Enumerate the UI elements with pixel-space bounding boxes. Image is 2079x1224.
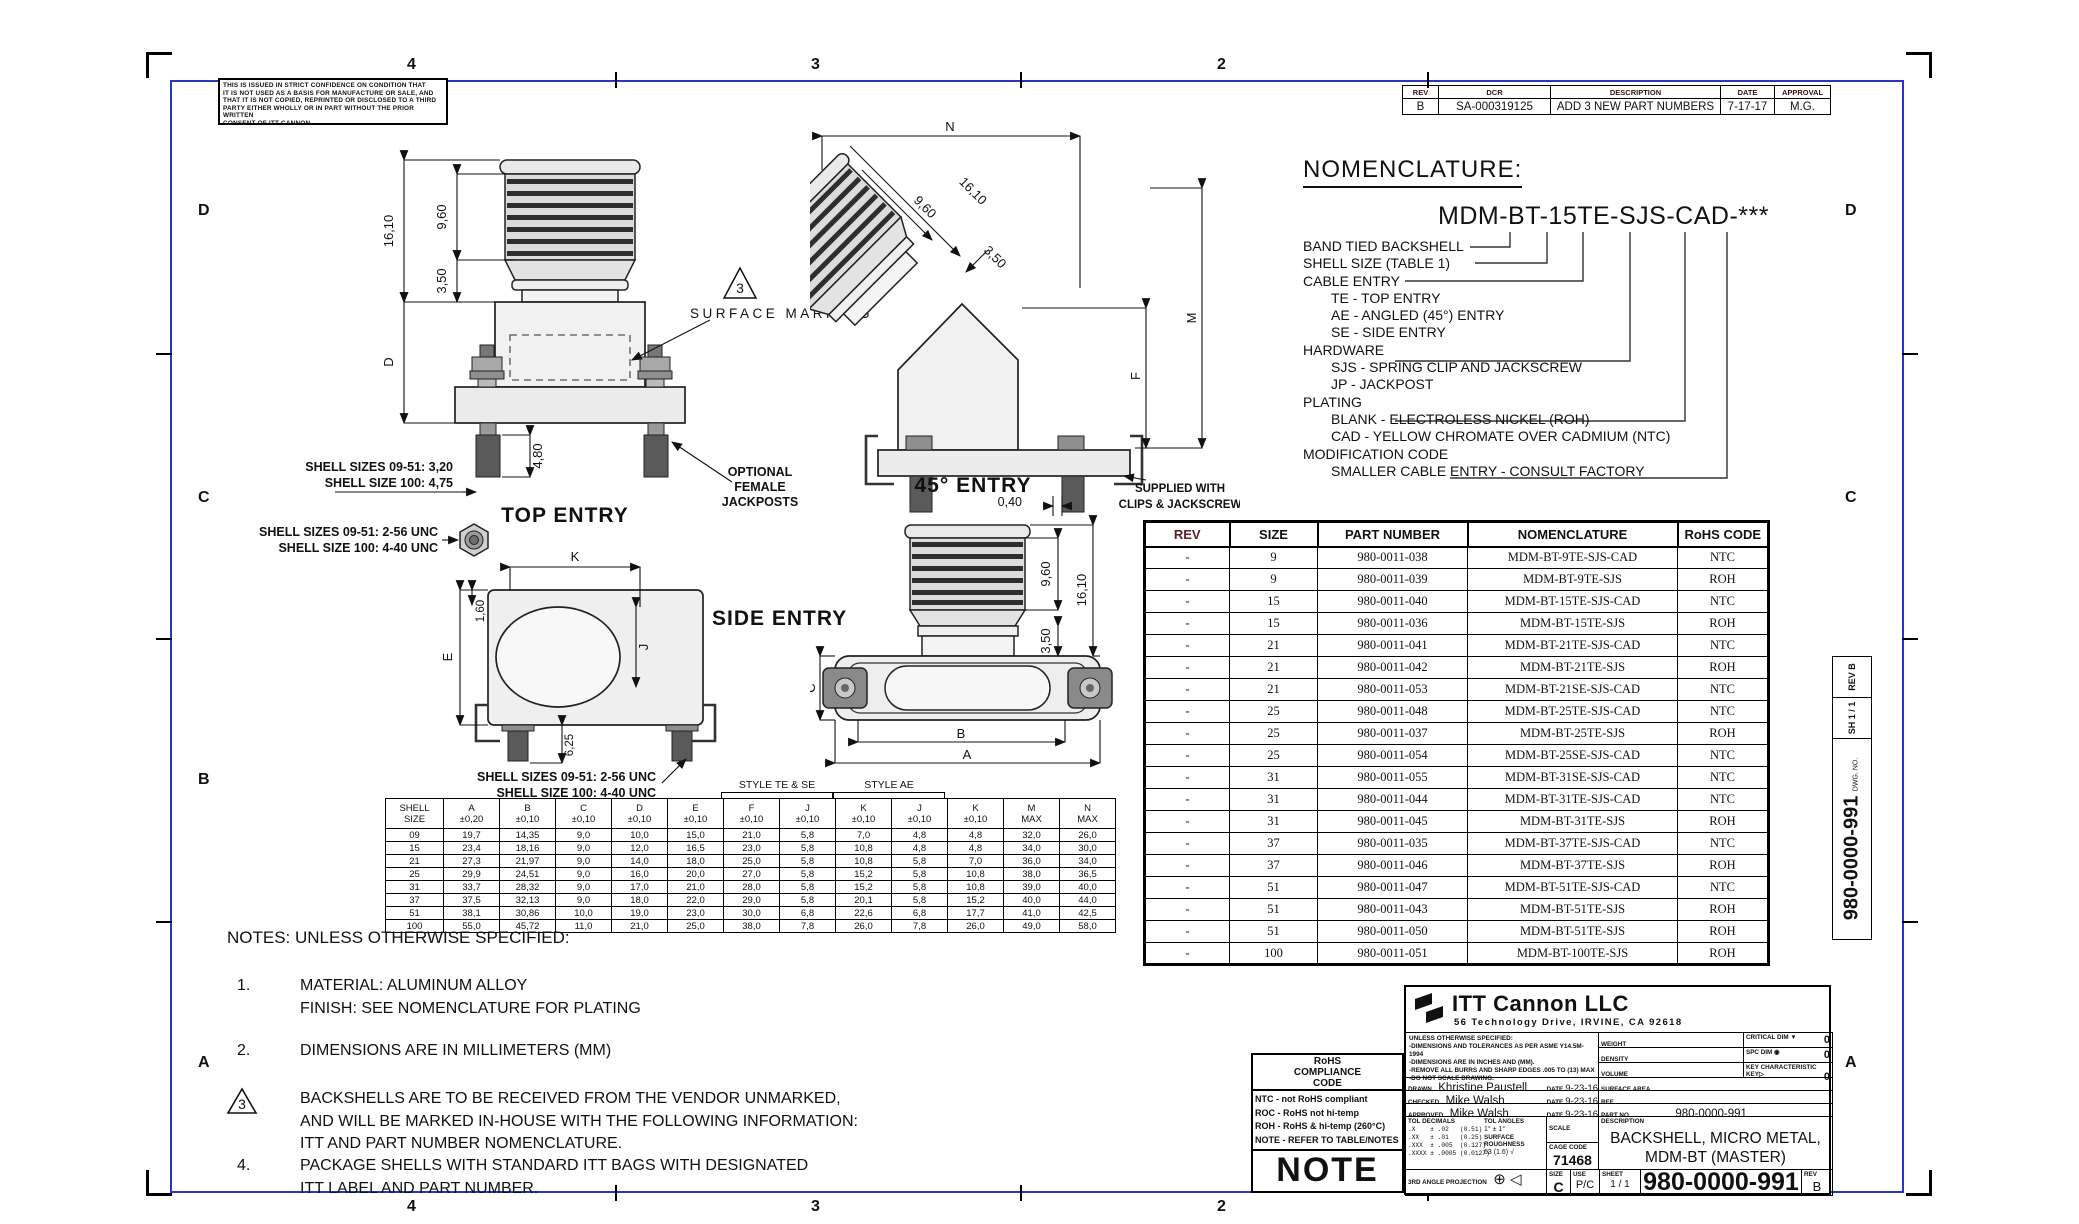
zone-label-top: 4 xyxy=(407,56,416,74)
confidence-notice: THIS IS ISSUED IN STRICT CONFIDENCE ON C… xyxy=(218,78,448,125)
table-cell: MDM-BT-21TE-SJS-CAD xyxy=(1468,635,1678,657)
entry-45-drawing xyxy=(810,151,1142,512)
note-item-2: 2. DIMENSIONS ARE IN MILLIMETERS (MM) xyxy=(227,1040,611,1063)
table-cell: 5,8 xyxy=(892,894,948,907)
table-cell: MDM-BT-15TE-SJS xyxy=(1468,613,1678,635)
table-cell: 39,0 xyxy=(1004,881,1060,894)
table-row: 1523,418,169,012,016,523,05,810,84,84,83… xyxy=(386,842,1116,855)
table-row: -31980-0011-045MDM-BT-31TE-SJSROH xyxy=(1145,811,1769,833)
table-cell: 4,8 xyxy=(948,829,1004,842)
dim-label: 3,50 xyxy=(1038,628,1053,653)
table-cell: - xyxy=(1145,855,1230,877)
table-cell: 10,8 xyxy=(948,868,1004,881)
table-cell: MDM-BT-21TE-SJS xyxy=(1468,657,1678,679)
dim-label: A xyxy=(963,747,972,762)
table-row: -31980-0011-044MDM-BT-31TE-SJS-CADNTC xyxy=(1145,789,1769,811)
table-cell: - xyxy=(1145,921,1230,943)
table-cell: 980-0011-037 xyxy=(1318,723,1468,745)
table-cell: 17,7 xyxy=(948,907,1004,920)
thread-note: SHELL SIZE 100: 4-40 UNC xyxy=(278,541,438,555)
dim-label: C xyxy=(810,683,818,692)
rev-value: B xyxy=(1802,1179,1832,1194)
note-line: PACKAGE SHELLS WITH STANDARD ITT BAGS WI… xyxy=(300,1155,808,1178)
table-cell: 980-0011-048 xyxy=(1318,701,1468,723)
cage-code-field: CAGE CODE 71468 xyxy=(1546,1142,1599,1170)
drawn-row: DRAWN Khristine Paustell DATE9-23-16 xyxy=(1405,1077,1599,1091)
table-cell: 19,0 xyxy=(612,907,668,920)
table-cell: 980-0011-050 xyxy=(1318,921,1468,943)
dim-label: 16,10 xyxy=(1074,574,1089,607)
table-row: -100980-0011-051MDM-BT-100TE-SJSROH xyxy=(1145,943,1769,965)
nomenclature-line: CAD - YELLOW CHROMATE OVER CADMIUM (NTC) xyxy=(1303,428,1670,445)
corner-mark xyxy=(146,52,172,78)
zone-tick xyxy=(156,353,172,355)
table-cell: 51 xyxy=(386,907,444,920)
table-cell: 5,8 xyxy=(780,868,836,881)
use-value: P/C xyxy=(1571,1179,1599,1191)
key-characteristic-field: KEY CHARACTERISTIC KEY▷ 0 xyxy=(1743,1062,1833,1078)
table-cell: - xyxy=(1145,679,1230,701)
dim-label: F xyxy=(1128,372,1143,380)
table-cell: ROH xyxy=(1678,657,1769,679)
surface-marking-flag: 3 xyxy=(724,268,756,298)
table-cell: MDM-BT-51TE-SJS xyxy=(1468,899,1678,921)
table-cell: 19,7 xyxy=(444,829,500,842)
table-row: -37980-0011-035MDM-BT-37TE-SJS-CADNTC xyxy=(1145,833,1769,855)
table-row: BSA-000319125ADD 3 NEW PART NUMBERS7-17-… xyxy=(1403,99,1831,115)
taper xyxy=(505,260,635,280)
table-row: -21980-0011-053MDM-BT-21SE-SJS-CADNTC xyxy=(1145,679,1769,701)
table-cell: 9,0 xyxy=(556,868,612,881)
nomenclature-legend: BAND TIED BACKSHELLSHELL SIZE (TABLE 1)C… xyxy=(1303,238,1670,480)
weight-field: WEIGHT xyxy=(1598,1032,1744,1048)
column-header: REV xyxy=(1403,86,1439,99)
table-cell: 41,0 xyxy=(1004,907,1060,920)
field-label: SHEET xyxy=(1600,1170,1640,1179)
description-value: BACKSHELL, MICRO METAL, MDM-BT (MASTER) xyxy=(1599,1126,1832,1170)
table-cell: ROH xyxy=(1678,921,1769,943)
table-cell: 15,2 xyxy=(948,894,1004,907)
note-line: ITT LABEL AND PART NUMBER. xyxy=(300,1178,808,1201)
table-cell: MDM-BT-9TE-SJS-CAD xyxy=(1468,547,1678,569)
zone-label-left: B xyxy=(198,771,210,789)
table-cell: MDM-BT-15TE-SJS-CAD xyxy=(1468,591,1678,613)
table-cell: 5,8 xyxy=(780,855,836,868)
rohs-legend-line: NTC - not RoHS compliant xyxy=(1255,1093,1400,1107)
table-cell: 980-0011-047 xyxy=(1318,877,1468,899)
table-cell: 5,8 xyxy=(892,855,948,868)
table-cell: 31 xyxy=(386,881,444,894)
column-header: SIZE xyxy=(1230,522,1318,547)
right-washer xyxy=(666,725,698,731)
edge-dwg-value: 980-0000-991 xyxy=(1841,796,1863,921)
table-row: 2529,924,519,016,020,027,05,815,25,810,8… xyxy=(386,868,1116,881)
table-row: 3133,728,329,017,021,028,05,815,25,810,8… xyxy=(386,881,1116,894)
table-cell: MDM-BT-51TE-SJS xyxy=(1468,921,1678,943)
table-cell: 21,0 xyxy=(724,829,780,842)
table-cell: 51 xyxy=(1230,921,1318,943)
table-cell: 980-0011-054 xyxy=(1318,745,1468,767)
surface-roughness-value: 63 (1.6) √ xyxy=(1482,1149,1546,1156)
table-cell: 7,0 xyxy=(836,829,892,842)
cable-opening xyxy=(496,607,620,707)
table-row: -9980-0011-039MDM-BT-9TE-SJSROH xyxy=(1145,569,1769,591)
left-jackscrew-center xyxy=(841,684,849,692)
svg-text:3: 3 xyxy=(736,280,744,296)
zone-label-right: A xyxy=(1845,1054,1857,1072)
note-item-4: 4. PACKAGE SHELLS WITH STANDARD ITT BAGS… xyxy=(227,1155,808,1200)
table-row: -51980-0011-047MDM-BT-51TE-SJS-CADNTC xyxy=(1145,877,1769,899)
table-cell: 10,8 xyxy=(836,855,892,868)
top-entry-drawing xyxy=(455,160,685,556)
table-cell: 30,86 xyxy=(500,907,556,920)
table-cell: 14,35 xyxy=(500,829,556,842)
table-cell: 23,4 xyxy=(444,842,500,855)
table-cell: ADD 3 NEW PART NUMBERS xyxy=(1551,99,1721,115)
table-cell: 33,7 xyxy=(444,881,500,894)
table-cell: 38,1 xyxy=(444,907,500,920)
table-cell: - xyxy=(1145,877,1230,899)
table-cell: 15 xyxy=(1230,613,1318,635)
thread-note: SHELL SIZES 09-51: 2-56 UNC xyxy=(477,770,656,784)
dim-label: 16,10 xyxy=(381,215,396,248)
left-screw-head xyxy=(906,436,932,450)
dim-label: 3,50 xyxy=(981,243,1010,272)
table-cell: 17,0 xyxy=(612,881,668,894)
field-label: 3RD ANGLE PROJECTION xyxy=(1406,1178,1489,1187)
table-cell: 980-0011-039 xyxy=(1318,569,1468,591)
note-number: 2. xyxy=(237,1040,250,1063)
table-cell: - xyxy=(1145,701,1230,723)
table-cell: 4,8 xyxy=(892,842,948,855)
table-cell: MDM-BT-25SE-SJS-CAD xyxy=(1468,745,1678,767)
projection-field: 3RD ANGLE PROJECTION ⊕ ◁ xyxy=(1405,1169,1547,1196)
table-row: 2127,321,979,014,018,025,05,810,85,87,03… xyxy=(386,855,1116,868)
table-cell: NTC xyxy=(1678,877,1769,899)
table-cell: - xyxy=(1145,613,1230,635)
field-label: KEY CHARACTERISTIC xyxy=(1746,1064,1817,1071)
rohs-legend-line: ROH - RoHS & hi-temp (260°C) xyxy=(1255,1120,1400,1134)
dim-label: E xyxy=(440,652,455,661)
table-cell: 49,0 xyxy=(1004,920,1060,933)
rohs-legend-line: NOTE - REFER TO TABLE/NOTES xyxy=(1255,1134,1400,1148)
table-cell: 58,0 xyxy=(1060,920,1116,933)
flange xyxy=(455,387,685,423)
table-cell: 37 xyxy=(1230,855,1318,877)
zone-tick xyxy=(1902,921,1918,923)
table-cell: 5,8 xyxy=(780,829,836,842)
jackposts-note: FEMALE xyxy=(734,480,785,494)
nomenclature-line: MODIFICATION CODE xyxy=(1303,446,1670,463)
d-slot xyxy=(885,666,1050,710)
edge-sheet-value: SH 1 / 1 xyxy=(1847,702,1857,735)
table-cell: 23,0 xyxy=(668,907,724,920)
side-entry-view: K J E 1,60 6,25 SIDE ENTRY SHELL SIZES 0… xyxy=(440,545,870,820)
table-cell: 30,0 xyxy=(1060,842,1116,855)
table-cell: 5,8 xyxy=(780,894,836,907)
table-cell: 21 xyxy=(1230,679,1318,701)
column-header: REV xyxy=(1145,522,1230,547)
stud-note: SHELL SIZES 09-51: 3,20 xyxy=(305,460,453,474)
nomenclature-title: NOMENCLATURE: xyxy=(1303,156,1522,188)
zone-label-left: D xyxy=(198,202,210,220)
table-cell: 980-0011-042 xyxy=(1318,657,1468,679)
note-number: 4. xyxy=(237,1155,250,1178)
table-cell: 980-0011-043 xyxy=(1318,899,1468,921)
table-cell: 24,51 xyxy=(500,868,556,881)
neck xyxy=(922,636,1014,656)
field-value: 0 xyxy=(1824,1049,1830,1061)
table-cell: - xyxy=(1145,657,1230,679)
side-entry-drawing xyxy=(476,590,715,761)
table-cell: NTC xyxy=(1678,767,1769,789)
table-cell: MDM-BT-31SE-SJS-CAD xyxy=(1468,767,1678,789)
table-cell: 21 xyxy=(1230,657,1318,679)
note-line: DIMENSIONS ARE IN MILLIMETERS (MM) xyxy=(300,1040,611,1063)
table-cell: 34,0 xyxy=(1004,842,1060,855)
table-cell: 7,8 xyxy=(780,920,836,933)
size-value: C xyxy=(1547,1179,1570,1195)
nomenclature-part-code: MDM-BT-15TE-SJS-CAD-*** xyxy=(1438,202,1769,231)
table-cell: NTC xyxy=(1678,547,1769,569)
table-cell: - xyxy=(1145,569,1230,591)
field-label: TOL ANGLES xyxy=(1482,1117,1546,1126)
nomenclature-line: AE - ANGLED (45°) ENTRY xyxy=(1303,307,1670,324)
table-cell: 26,0 xyxy=(1060,829,1116,842)
table-row: 3737,532,139,018,022,029,05,820,15,815,2… xyxy=(386,894,1116,907)
table-cell: MDM-BT-51TE-SJS-CAD xyxy=(1468,877,1678,899)
table-cell: NTC xyxy=(1678,679,1769,701)
table-cell: 27,0 xyxy=(724,868,780,881)
table-cell: NTC xyxy=(1678,635,1769,657)
table-cell: 18,0 xyxy=(612,894,668,907)
table-cell: M.G. xyxy=(1775,99,1831,115)
table-cell: MDM-BT-31TE-SJS-CAD xyxy=(1468,789,1678,811)
drawing-number: 980-0000-991 xyxy=(1640,1169,1802,1196)
entry-45-view: N 9,60 16,10 3,50 M F 45° ENTRY SUPPLIED… xyxy=(810,118,1240,520)
table-cell: SA-000319125 xyxy=(1439,99,1551,115)
dim-label: M xyxy=(1184,313,1199,324)
table-row: 0919,714,359,010,015,021,05,87,04,84,832… xyxy=(386,829,1116,842)
critical-dim-field: CRITICAL DIM ▼ 0 xyxy=(1743,1032,1833,1048)
rohs-note-label: NOTE xyxy=(1253,1151,1402,1189)
nomenclature-line: SJS - SPRING CLIP AND JACKSCREW xyxy=(1303,359,1670,376)
zone-tick xyxy=(1902,638,1918,640)
band-cap xyxy=(905,525,1030,538)
table-row: -21980-0011-041MDM-BT-21TE-SJS-CADNTC xyxy=(1145,635,1769,657)
dim-label: 16,10 xyxy=(956,174,990,208)
drawing-sheet: 4 3 2 4 3 2 D C B A D C A THIS IS ISSUED… xyxy=(0,0,2079,1224)
sheet-value: 1 / 1 xyxy=(1600,1179,1640,1190)
table-cell: ROH xyxy=(1678,899,1769,921)
column-header: APPROVAL xyxy=(1775,86,1831,99)
table-row: -21980-0011-042MDM-BT-21TE-SJSROH xyxy=(1145,657,1769,679)
field-value: 0 xyxy=(1824,1034,1830,1046)
table-row: -25980-0011-048MDM-BT-25TE-SJS-CADNTC xyxy=(1145,701,1769,723)
table-cell: ROH xyxy=(1678,943,1769,965)
angled-body xyxy=(898,304,1018,450)
left-stud xyxy=(508,731,528,761)
table-cell: 51 xyxy=(1230,899,1318,921)
dim-label: 4,80 xyxy=(530,443,545,468)
zone-tick xyxy=(156,921,172,923)
table-cell: 38,0 xyxy=(724,920,780,933)
table-cell: 100 xyxy=(1230,943,1318,965)
table-cell: - xyxy=(1145,635,1230,657)
table-cell: 7,8 xyxy=(892,920,948,933)
field-label: SCALE xyxy=(1547,1124,1572,1133)
zone-tick xyxy=(156,638,172,640)
use-field: USE P/C xyxy=(1570,1169,1600,1196)
corner-mark xyxy=(1906,52,1932,78)
table-cell: B xyxy=(1403,99,1439,115)
field-label: SPC DIM xyxy=(1746,1049,1772,1056)
dim-label: 6,25 xyxy=(564,734,576,756)
table-cell: - xyxy=(1145,943,1230,965)
parts-header-row: REV SIZE PART NUMBER NOMENCLATURE RoHS C… xyxy=(1145,522,1769,547)
dim-label: J xyxy=(636,644,651,651)
table-cell: - xyxy=(1145,547,1230,569)
table-cell: 9,0 xyxy=(556,881,612,894)
zone-label-top: 3 xyxy=(811,56,820,74)
table-cell: MDM-BT-25TE-SJS-CAD xyxy=(1468,701,1678,723)
field-label: CRITICAL DIM xyxy=(1746,1034,1789,1041)
zone-tick xyxy=(615,72,617,88)
table-cell: MDM-BT-100TE-SJS xyxy=(1468,943,1678,965)
table-cell: ROH xyxy=(1678,855,1769,877)
rohs-title: RoHS COMPLIANCE CODE xyxy=(1253,1055,1402,1091)
table-cell: 37,5 xyxy=(444,894,500,907)
table-cell: 15 xyxy=(386,842,444,855)
table-cell: 9,0 xyxy=(556,894,612,907)
table-cell: 9 xyxy=(1230,569,1318,591)
zone-label-bottom: 4 xyxy=(407,1198,416,1216)
table-cell: 36,0 xyxy=(1004,855,1060,868)
table-cell: 10,0 xyxy=(612,829,668,842)
table-cell: 21 xyxy=(386,855,444,868)
table-cell: - xyxy=(1145,745,1230,767)
table-cell: - xyxy=(1145,899,1230,921)
table-cell: 9 xyxy=(1230,547,1318,569)
table-cell: 980-0011-055 xyxy=(1318,767,1468,789)
itt-logo-icon xyxy=(1412,991,1448,1027)
table-cell: 16,0 xyxy=(612,868,668,881)
table-cell: 22,6 xyxy=(836,907,892,920)
table-cell: 9,0 xyxy=(556,855,612,868)
table-cell: 20,0 xyxy=(668,868,724,881)
rohs-legend: NTC - not RoHS compliantROC - RoHS not h… xyxy=(1253,1091,1402,1151)
dim-label: 9,60 xyxy=(911,193,940,222)
table-cell: 15,2 xyxy=(836,881,892,894)
table-row: 5138,130,8610,019,023,030,06,822,66,817,… xyxy=(386,907,1116,920)
table-cell: 980-0011-041 xyxy=(1318,635,1468,657)
column-header: SHELLSIZE xyxy=(386,799,444,829)
spc-dim-field: SPC DIM ◉ 0 xyxy=(1743,1047,1833,1063)
jackposts-note: OPTIONAL xyxy=(728,465,793,479)
table-cell: ROH xyxy=(1678,811,1769,833)
notes-heading: NOTES: UNLESS OTHERWISE SPECIFIED: xyxy=(227,928,570,948)
table-cell: 29,9 xyxy=(444,868,500,881)
zone-tick xyxy=(1020,72,1022,88)
table-row: -15980-0011-040MDM-BT-15TE-SJS-CADNTC xyxy=(1145,591,1769,613)
zone-label-right: D xyxy=(1845,202,1857,220)
right-screw-head xyxy=(1058,436,1084,450)
corner-mark xyxy=(1906,1170,1932,1196)
dim-label: 9,60 xyxy=(1038,561,1053,586)
column-header: PART NUMBER xyxy=(1318,522,1468,547)
table-cell: 25 xyxy=(1230,701,1318,723)
column-header: DESCRIPTION xyxy=(1551,86,1721,99)
nomenclature-line: TE - TOP ENTRY xyxy=(1303,290,1670,307)
dim-label: K xyxy=(571,549,580,564)
corner-mark xyxy=(146,1170,172,1196)
zone-label-right: C xyxy=(1845,489,1857,507)
table-cell: 32,13 xyxy=(500,894,556,907)
zone-label-bottom: 3 xyxy=(811,1198,820,1216)
table-cell: - xyxy=(1145,811,1230,833)
table-cell: 51 xyxy=(1230,877,1318,899)
table-cell: 5,8 xyxy=(892,868,948,881)
table-cell: 980-0011-053 xyxy=(1318,679,1468,701)
table-cell: 15,2 xyxy=(836,868,892,881)
surface-area-field: SURFACE AREA xyxy=(1598,1077,1833,1091)
table-cell: 7,0 xyxy=(948,855,1004,868)
right-stud xyxy=(672,731,692,761)
table-cell: 37 xyxy=(1230,833,1318,855)
table-cell: 38,0 xyxy=(1004,868,1060,881)
table-cell: 10,8 xyxy=(836,842,892,855)
rev-field: REV B xyxy=(1801,1169,1833,1196)
table-cell: 32,0 xyxy=(1004,829,1060,842)
style-front-view: 0,40 9,60 16,10 3,50 C B A xyxy=(810,470,1150,815)
field-label: SURFACE ROUGHNESS xyxy=(1482,1133,1546,1149)
table-cell: 6,8 xyxy=(780,907,836,920)
note-item-1: 1. MATERIAL: ALUMINUM ALLOYFINISH: SEE N… xyxy=(227,975,641,1020)
nomenclature-line: HARDWARE xyxy=(1303,342,1670,359)
dim-label: 1,60 xyxy=(475,600,487,622)
svg-text:3: 3 xyxy=(238,1096,246,1112)
cage-code-value: 71468 xyxy=(1547,1152,1598,1168)
scale-field: SCALE xyxy=(1546,1116,1599,1143)
approved-row: APPROVED Mike Walsh DATE9-23-16 xyxy=(1405,1103,1599,1117)
field-label: USE xyxy=(1571,1170,1599,1179)
title-block: ITT Cannon LLC 56 Technology Drive, IRVI… xyxy=(1404,985,1831,1195)
table-cell: 22,0 xyxy=(668,894,724,907)
table-row: -25980-0011-054MDM-BT-25SE-SJS-CADNTC xyxy=(1145,745,1769,767)
table-cell: 31 xyxy=(1230,767,1318,789)
column-header: DCR xyxy=(1439,86,1551,99)
table-cell: NTC xyxy=(1678,745,1769,767)
zone-label-left: C xyxy=(198,489,210,507)
field-label: SIZE xyxy=(1547,1170,1570,1179)
table-row: -37980-0011-046MDM-BT-37TE-SJSROH xyxy=(1145,855,1769,877)
revision-table: REV DCR DESCRIPTION DATE APPROVAL BSA-00… xyxy=(1402,85,1831,115)
table-cell: NTC xyxy=(1678,701,1769,723)
table-cell: MDM-BT-37TE-SJS xyxy=(1468,855,1678,877)
table-cell: 15 xyxy=(1230,591,1318,613)
note-number: 1. xyxy=(237,975,250,998)
revision-header-row: REV DCR DESCRIPTION DATE APPROVAL xyxy=(1403,86,1831,99)
table-row: -51980-0011-050MDM-BT-51TE-SJSROH xyxy=(1145,921,1769,943)
edge-sheet-cell: SH 1 / 1 xyxy=(1832,697,1872,739)
column-header: NOMENCLATURE xyxy=(1468,522,1678,547)
tolerance-values: .X ± .02 (0.51) .XX ± .01 (0.25) .XXX ± … xyxy=(1406,1126,1482,1158)
table-cell: 31 xyxy=(1230,789,1318,811)
table-cell: 9,0 xyxy=(556,829,612,842)
tolerance-block: TOL DECIMALS .X ± .02 (0.51) .XX ± .01 (… xyxy=(1405,1116,1547,1170)
table-cell: 9,0 xyxy=(556,842,612,855)
table-cell: 37 xyxy=(386,894,444,907)
